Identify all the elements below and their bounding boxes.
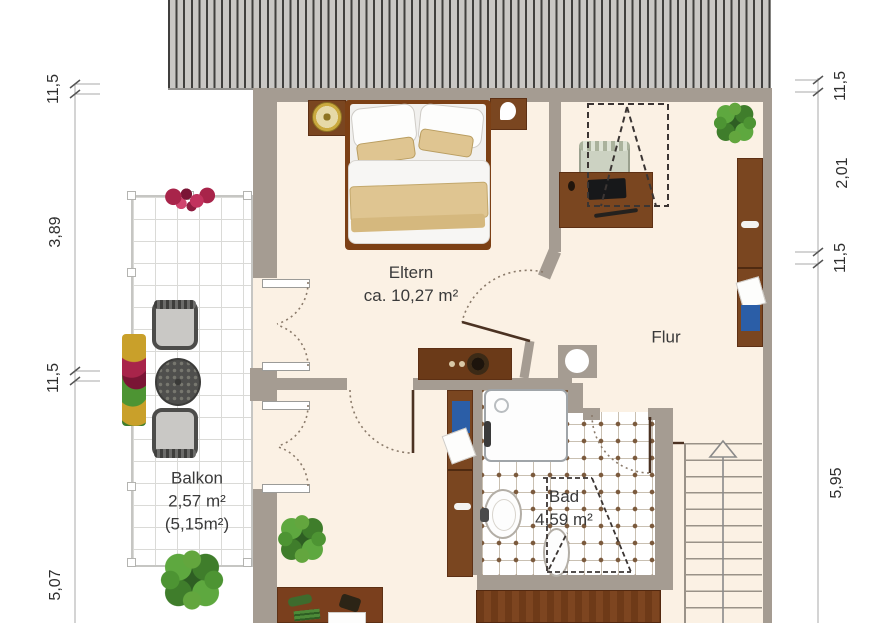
room-name: Balkon bbox=[165, 467, 229, 490]
room-name: Flur bbox=[651, 326, 680, 349]
room-name: Bad bbox=[535, 485, 593, 508]
room-area-gross: (5,15m²) bbox=[165, 513, 229, 536]
plan-linework bbox=[0, 0, 892, 623]
flur-label: Flur bbox=[651, 326, 680, 349]
bad-label: Bad 4,59 m² bbox=[535, 485, 593, 531]
balkon-label: Balkon 2,57 m² (5,15m²) bbox=[165, 467, 229, 536]
room-name: Eltern bbox=[364, 261, 459, 284]
dormer-dashes bbox=[588, 104, 668, 206]
room-area: 4,59 m² bbox=[535, 508, 593, 531]
stairs-up-arrow-icon bbox=[710, 441, 736, 457]
room-area: 2,57 m² bbox=[165, 490, 229, 513]
eltern-label: Eltern ca. 10,27 m² bbox=[364, 261, 459, 307]
door-swing-arcs bbox=[277, 270, 650, 486]
floor-plan: Eltern ca. 10,27 m² Flur Bad 4,59 m² Bal… bbox=[0, 0, 892, 623]
room-area: ca. 10,27 m² bbox=[364, 284, 459, 307]
dimension-ticks bbox=[70, 76, 823, 385]
dimension-lines bbox=[75, 78, 818, 623]
